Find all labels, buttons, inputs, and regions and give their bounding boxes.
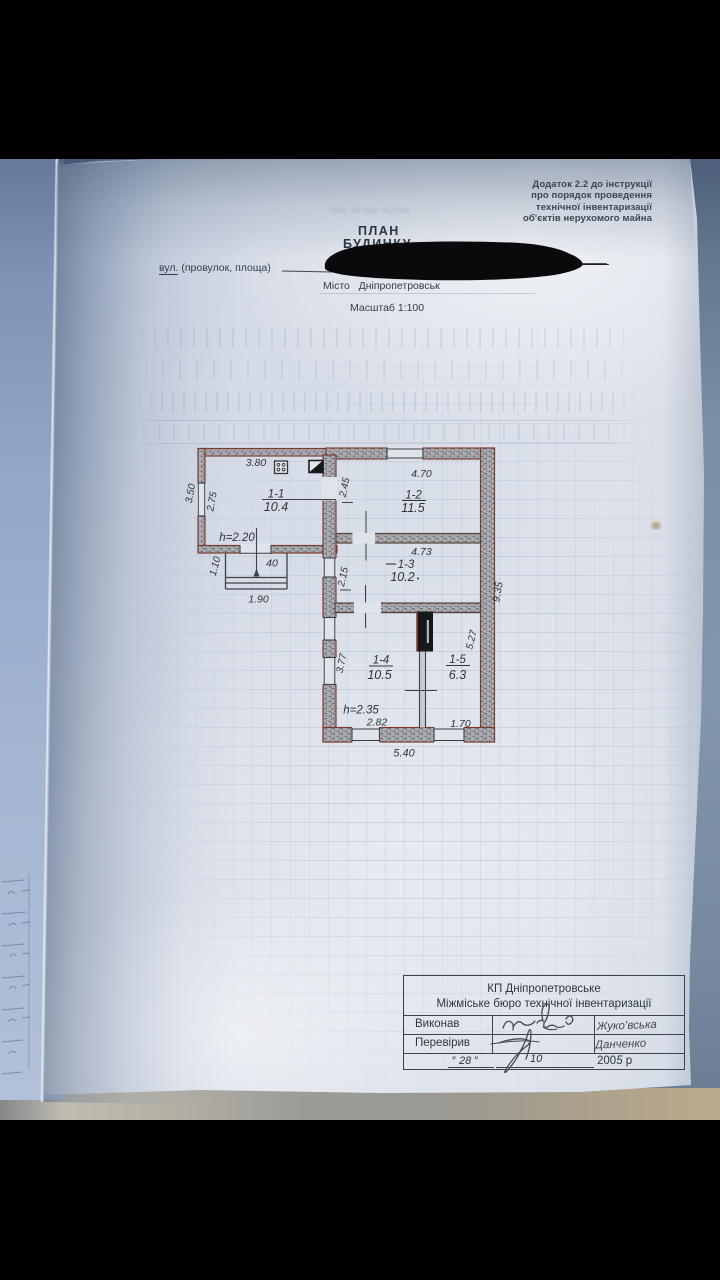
svg-text:6.3: 6.3 [449,668,466,682]
svg-text:3.50: 3.50 [185,483,198,505]
svg-text:h=2.35: h=2.35 [343,705,379,717]
svg-text:1.70: 1.70 [450,718,471,730]
svg-text:1.10: 1.10 [208,555,224,577]
svg-text:1-2: 1-2 [405,490,422,502]
svg-text:1-5: 1-5 [449,654,466,666]
svg-text:40: 40 [266,558,278,570]
svg-text:Жукоʻвська: Жукоʻвська [596,1019,657,1033]
svg-text:2.82: 2.82 [366,717,388,729]
svg-text:1-1: 1-1 [268,489,285,501]
svg-text:4.70: 4.70 [411,468,432,480]
svg-text:10.5: 10.5 [367,668,391,682]
svg-text:9.35: 9.35 [490,581,505,603]
svg-text:10.2: 10.2 [390,570,414,584]
svg-text:Данченко: Данченко [593,1038,647,1052]
svg-text:4.73: 4.73 [411,546,432,558]
svg-text:3.80: 3.80 [246,457,267,469]
svg-text:1-4: 1-4 [373,655,390,667]
svg-text:10.4: 10.4 [264,500,288,514]
svg-text:h=2.20: h=2.20 [219,532,255,544]
svg-text:1.90: 1.90 [248,594,269,606]
svg-text:5.40: 5.40 [393,748,415,760]
svg-text:11.5: 11.5 [401,501,424,515]
